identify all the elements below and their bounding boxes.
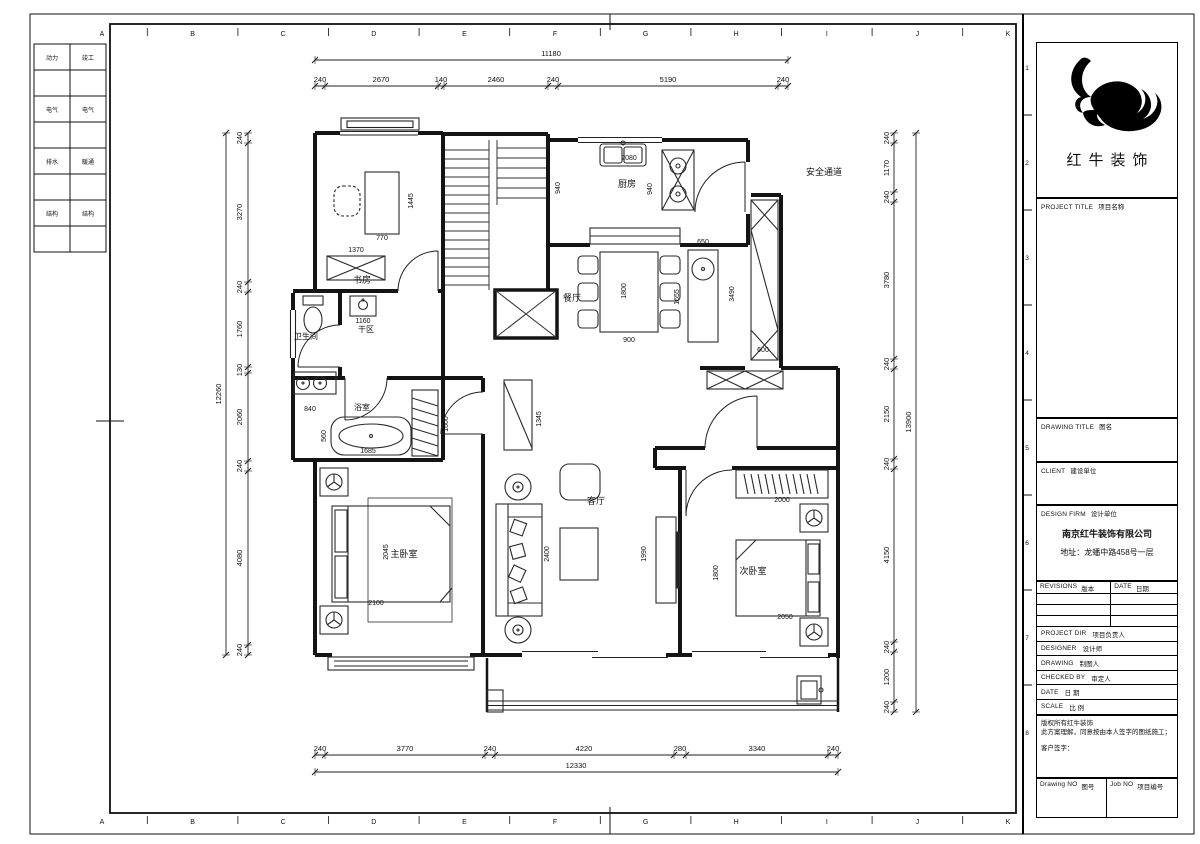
plan-label: 2045 xyxy=(383,544,390,560)
plan-label: 4150 xyxy=(882,547,891,564)
plan-label: 240 xyxy=(235,644,244,657)
plan-label: 1800 xyxy=(621,283,628,299)
copyright-line2: 此方案理解，同意按由本人签字的图纸施工； xyxy=(1041,728,1173,738)
plan-label: 840 xyxy=(304,406,316,413)
plan-label: 1160 xyxy=(355,318,370,325)
revision-row xyxy=(1037,604,1177,615)
plan-label: 2100 xyxy=(368,600,384,607)
project-title-label-en: PROJECT TITLE xyxy=(1041,204,1093,211)
plan-label: 浴室 xyxy=(354,402,370,412)
plan-label: F xyxy=(553,819,557,826)
row-label-cn: 项目负责人 xyxy=(1092,629,1125,639)
revision-row xyxy=(1037,593,1177,604)
plan-label: F xyxy=(553,31,557,38)
plan-label: 2060 xyxy=(235,409,244,426)
plan-label: 动力 xyxy=(46,54,58,62)
row-designer: DESIGNER 设计师 xyxy=(1037,641,1177,656)
row-project-dir: PROJECT DIR 项目负责人 xyxy=(1037,626,1177,641)
plan-label: B xyxy=(190,31,195,38)
plan-label: 1370 xyxy=(348,247,364,254)
row-label-en: CHECKED BY xyxy=(1041,674,1085,681)
row-scale: SCALE 比 例 xyxy=(1037,699,1177,714)
plan-label: 电气 xyxy=(82,106,94,114)
plan-label: 900 xyxy=(623,337,635,344)
plan-label: 240 xyxy=(882,132,891,145)
project-title-section: PROJECT TITLE 项目名称 xyxy=(1037,197,1177,417)
plan-label: 2150 xyxy=(882,406,891,423)
plan-label: 安全通道 xyxy=(806,166,842,177)
plan-label: H xyxy=(734,31,739,38)
row-label-cn: 设计师 xyxy=(1083,643,1103,653)
plan-label: G xyxy=(643,31,648,38)
plan-label: 12330 xyxy=(566,761,587,770)
plan-label: 干区 xyxy=(358,325,374,334)
drawing-number-section: Drawing NO 图号 Job NO 项目编号 xyxy=(1037,777,1177,817)
plan-label: H xyxy=(734,819,739,826)
plan-label: 240 xyxy=(235,460,244,473)
plan-label: 结构 xyxy=(46,210,58,218)
plan-label: 1345 xyxy=(536,411,543,427)
plan-label: 客厅 xyxy=(587,495,605,506)
plan-label: 1990 xyxy=(641,546,648,562)
plan-label: D xyxy=(371,819,376,826)
drawing-no-label-en: Drawing NO xyxy=(1040,781,1077,788)
revision-row xyxy=(1037,615,1177,626)
row-label-cn: 审定人 xyxy=(1091,673,1111,683)
plan-label: 厨房 xyxy=(618,178,636,189)
balcony-items xyxy=(487,676,823,712)
titleblock-divider xyxy=(1022,14,1024,834)
row-label-cn: 制图人 xyxy=(1080,658,1100,668)
plan-label: 竣工 xyxy=(82,54,94,62)
row-label-en: DRAWING xyxy=(1041,660,1074,667)
plan-label: 13900 xyxy=(904,412,913,433)
plan-label: C xyxy=(281,31,286,38)
plan-label: B xyxy=(190,819,195,826)
revisions-label-cn: 版本 xyxy=(1081,583,1094,592)
study-furniture xyxy=(327,172,399,280)
balcony-walls xyxy=(487,658,838,712)
plan-labels: 动力竣工电气电气排水暖通结构结构111802402670140246024051… xyxy=(46,49,913,770)
plan-label: 240 xyxy=(827,744,840,753)
plan-label: 暖通 xyxy=(82,158,94,166)
living-room-furniture xyxy=(496,464,680,643)
drawing-title-label-cn: 图名 xyxy=(1099,421,1112,431)
plan-label: 240 xyxy=(314,744,327,753)
plan-label: G xyxy=(643,819,648,826)
title-block: 红牛装饰 PROJECT TITLE 项目名称 DRAWING TITLE 图名… xyxy=(1036,42,1178,818)
row-label-cn: 日 期 xyxy=(1065,687,1080,697)
plan-label: J xyxy=(916,31,920,38)
plan-label: 1655 xyxy=(674,289,681,305)
redbull-logo-icon xyxy=(1047,53,1167,145)
plan-label: 240 xyxy=(882,358,891,371)
plan-label: 240 xyxy=(235,281,244,294)
shaft-x xyxy=(495,290,557,338)
brand-logo-area: 红牛装饰 xyxy=(1037,43,1177,197)
hall-closet xyxy=(504,380,532,450)
plan-label: 650 xyxy=(697,239,709,246)
plan-label: 卫生间 xyxy=(294,331,318,341)
plan-label: 1600 xyxy=(443,416,450,432)
plan-label: 4220 xyxy=(576,744,593,753)
client-label-cn: 建设单位 xyxy=(1070,465,1096,475)
plan-label: 3780 xyxy=(882,272,891,289)
plan-label: 240 xyxy=(882,458,891,471)
plan-label: 2460 xyxy=(488,75,505,84)
plan-label: 排水 xyxy=(46,158,58,166)
plan-label: 电气 xyxy=(46,106,58,114)
row-label-en: SCALE xyxy=(1041,703,1063,710)
floor-plan-canvas: 动力竣工电气电气排水暖通结构结构111802402670140246024051… xyxy=(0,0,1200,844)
plan-label: 3490 xyxy=(729,286,736,302)
plan-label: 11180 xyxy=(541,49,561,58)
row-date: DATE 日 期 xyxy=(1037,684,1177,699)
plan-label: 600 xyxy=(757,347,769,354)
row-drawing: DRAWING 制图人 xyxy=(1037,655,1177,670)
plan-label: 3270 xyxy=(235,204,244,221)
plan-label: 3770 xyxy=(397,744,414,753)
plan-label: 1200 xyxy=(882,669,891,686)
plan-label: E xyxy=(462,819,467,826)
firm-name: 南京红牛装饰有限公司 xyxy=(1041,527,1173,540)
plan-label: I xyxy=(826,819,828,826)
plan-label: 7 xyxy=(1025,635,1029,642)
plan-label: 主卧室 xyxy=(390,548,417,559)
signature-label: 客户签字： xyxy=(1041,744,1173,754)
plan-label: 次卧室 xyxy=(739,565,766,576)
row-label-en: DESIGNER xyxy=(1041,645,1077,652)
plan-label: D xyxy=(371,31,376,38)
project-title-label-cn: 项目名称 xyxy=(1098,201,1124,211)
row-label-en: DATE xyxy=(1041,689,1059,696)
plan-label: 240 xyxy=(235,132,244,145)
plan-label: 2400 xyxy=(544,546,551,562)
date-col-label-en: DATE xyxy=(1114,583,1132,592)
plan-label: 5190 xyxy=(660,75,677,84)
plan-label: 4080 xyxy=(235,550,244,567)
design-firm-label-cn: 设计单位 xyxy=(1091,508,1117,518)
dining-furniture xyxy=(578,250,718,342)
plan-label: 940 xyxy=(647,183,654,195)
plan-label: 560 xyxy=(321,430,328,442)
kitchen-fixtures xyxy=(590,141,694,244)
drawing-no-label-cn: 图号 xyxy=(1081,781,1094,791)
plan-label: 770 xyxy=(376,235,388,242)
plan-label: A xyxy=(100,819,105,826)
copyright-section: 版权所有红牛装饰 此方案理解，同意按由本人签字的图纸施工； 客户签字： xyxy=(1037,714,1177,778)
plan-label: 130 xyxy=(235,364,244,377)
revisions-label-en: REVISIONS xyxy=(1040,583,1077,592)
plan-label: 4 xyxy=(1025,350,1029,357)
row-label-en: PROJECT DIR xyxy=(1041,630,1086,637)
plan-label: 1800 xyxy=(713,565,720,581)
row-label-cn: 比 例 xyxy=(1069,702,1084,712)
plan-label: 结构 xyxy=(82,210,94,218)
drawing-title-section: DRAWING TITLE 图名 xyxy=(1037,417,1177,461)
plan-label: I xyxy=(826,31,828,38)
walls xyxy=(293,133,838,658)
plan-label: 2 xyxy=(1025,160,1029,167)
drawing-sheet: { "title_block": { "brand": "红牛装饰", "pro… xyxy=(0,0,1200,844)
plan-label: 280 xyxy=(674,744,687,753)
firm-address: 地址：龙蟠中路458号一层 xyxy=(1041,547,1173,558)
plan-label: 940 xyxy=(555,182,562,194)
plan-label: K xyxy=(1006,31,1011,38)
plan-label: 3 xyxy=(1025,255,1029,262)
plan-label: 240 xyxy=(484,744,497,753)
plan-label: 240 xyxy=(314,75,327,84)
brand-name: 红牛装饰 xyxy=(1059,149,1154,170)
plan-label: 1445 xyxy=(408,193,415,209)
plan-label: A xyxy=(100,31,105,38)
plan-label: K xyxy=(1006,819,1011,826)
job-no-label-en: Job NO xyxy=(1110,781,1133,788)
plan-label: 140 xyxy=(435,75,448,84)
design-firm-section: DESIGN FIRM 设计单位 南京红牛装饰有限公司 地址：龙蟠中路458号一… xyxy=(1037,504,1177,580)
job-no-label-cn: 项目编号 xyxy=(1137,781,1163,791)
plan-label: 240 xyxy=(882,641,891,654)
dimension-chains xyxy=(222,56,920,776)
plan-label: E xyxy=(462,31,467,38)
plan-label: 1 xyxy=(1025,65,1029,72)
plan-label: 8 xyxy=(1025,730,1029,737)
plan-label: 3340 xyxy=(749,744,766,753)
design-firm-label-en: DESIGN FIRM xyxy=(1041,511,1086,518)
plan-label: 2000 xyxy=(774,497,790,504)
plan-label: 5 xyxy=(1025,445,1029,452)
plan-label: 12260 xyxy=(214,384,223,405)
plan-label: 1760 xyxy=(235,321,244,338)
plan-label: 2050 xyxy=(777,614,793,621)
revisions-table: REVISIONS 版本 DATE 日期 xyxy=(1037,580,1177,626)
drawing-title-label-en: DRAWING TITLE xyxy=(1041,424,1094,431)
plan-label: 餐厅 xyxy=(563,292,581,303)
plan-label: 2080 xyxy=(621,155,637,162)
client-label-en: CLIENT xyxy=(1041,468,1065,475)
date-col-label-cn: 日期 xyxy=(1136,583,1149,592)
plan-label: C xyxy=(281,819,286,826)
plan-label: 240 xyxy=(882,701,891,714)
plan-label: 240 xyxy=(547,75,560,84)
plan-label: 1170 xyxy=(882,160,891,176)
plan-label: 6 xyxy=(1025,540,1029,547)
windows xyxy=(291,118,839,710)
stairs xyxy=(445,140,557,338)
plan-label: 书房 xyxy=(353,274,371,285)
plan-label: 240 xyxy=(882,191,891,204)
row-checked-by: CHECKED BY 审定人 xyxy=(1037,670,1177,685)
plan-label: 2670 xyxy=(373,75,390,84)
copyright-line1: 版权所有红牛装饰 xyxy=(1041,719,1173,729)
plan-label: 240 xyxy=(777,75,790,84)
client-section: CLIENT 建设单位 xyxy=(1037,461,1177,505)
signoff-strip xyxy=(34,44,106,252)
plan-label: J xyxy=(916,819,920,826)
plan-label: 1685 xyxy=(360,448,376,455)
